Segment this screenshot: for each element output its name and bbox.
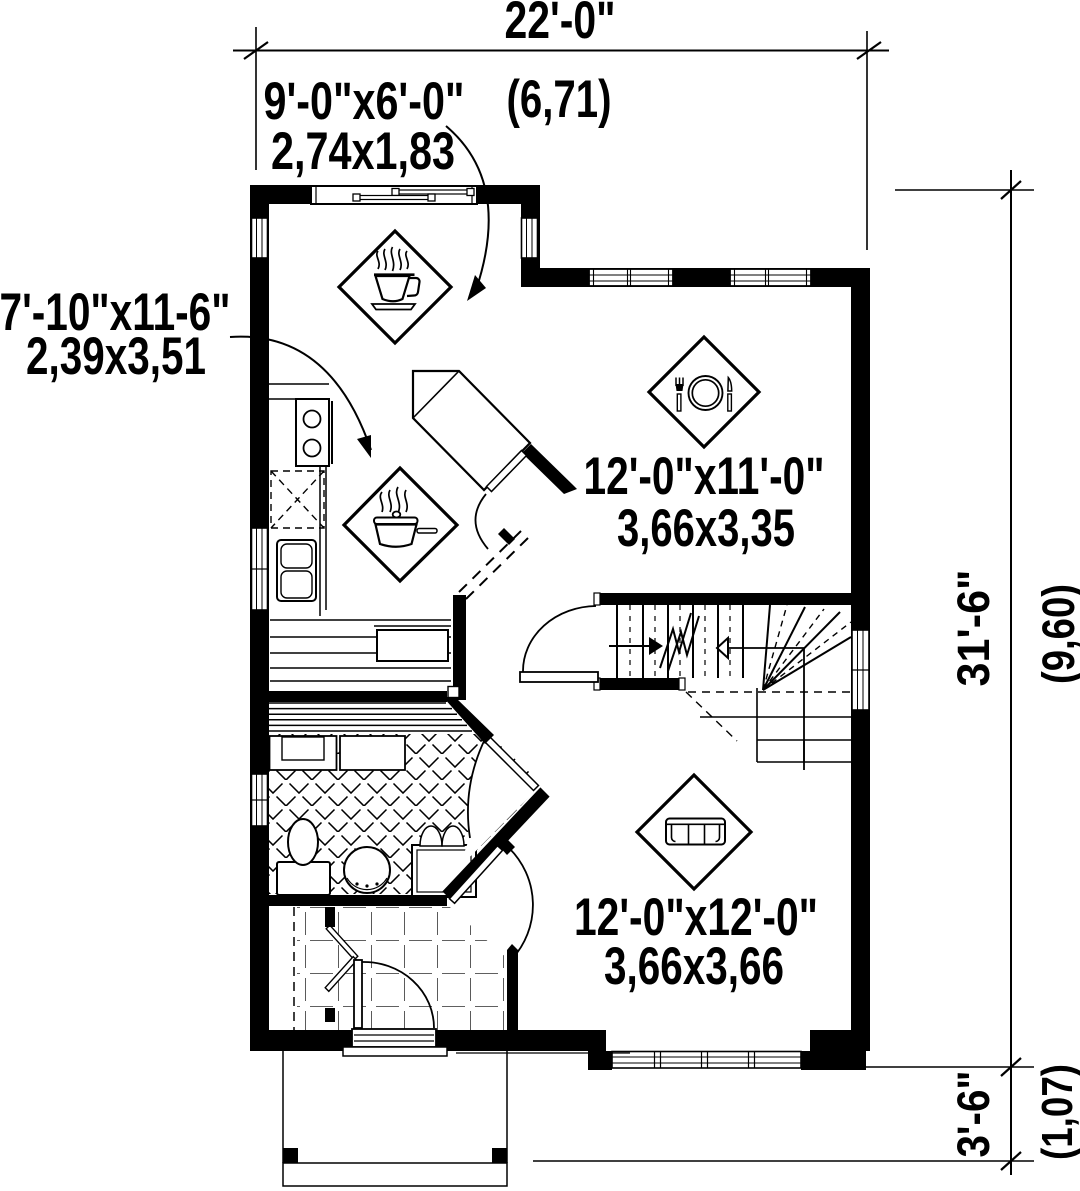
- svg-text:31'-6": 31'-6": [948, 570, 999, 687]
- svg-text:12'-0"x11'-0": 12'-0"x11'-0": [584, 447, 825, 506]
- svg-text:3,66x3,66: 3,66x3,66: [604, 937, 784, 996]
- svg-text:3'-6": 3'-6": [948, 1071, 999, 1158]
- svg-text:3,66x3,35: 3,66x3,35: [617, 499, 795, 558]
- svg-text:22'-0": 22'-0": [505, 0, 616, 50]
- svg-text:2,74x1,83: 2,74x1,83: [271, 122, 455, 181]
- svg-text:(6,71): (6,71): [507, 70, 612, 129]
- svg-text:(9,60): (9,60): [1033, 584, 1080, 684]
- svg-text:2,39x3,51: 2,39x3,51: [26, 327, 206, 386]
- svg-text:(1,07): (1,07): [1033, 1064, 1080, 1160]
